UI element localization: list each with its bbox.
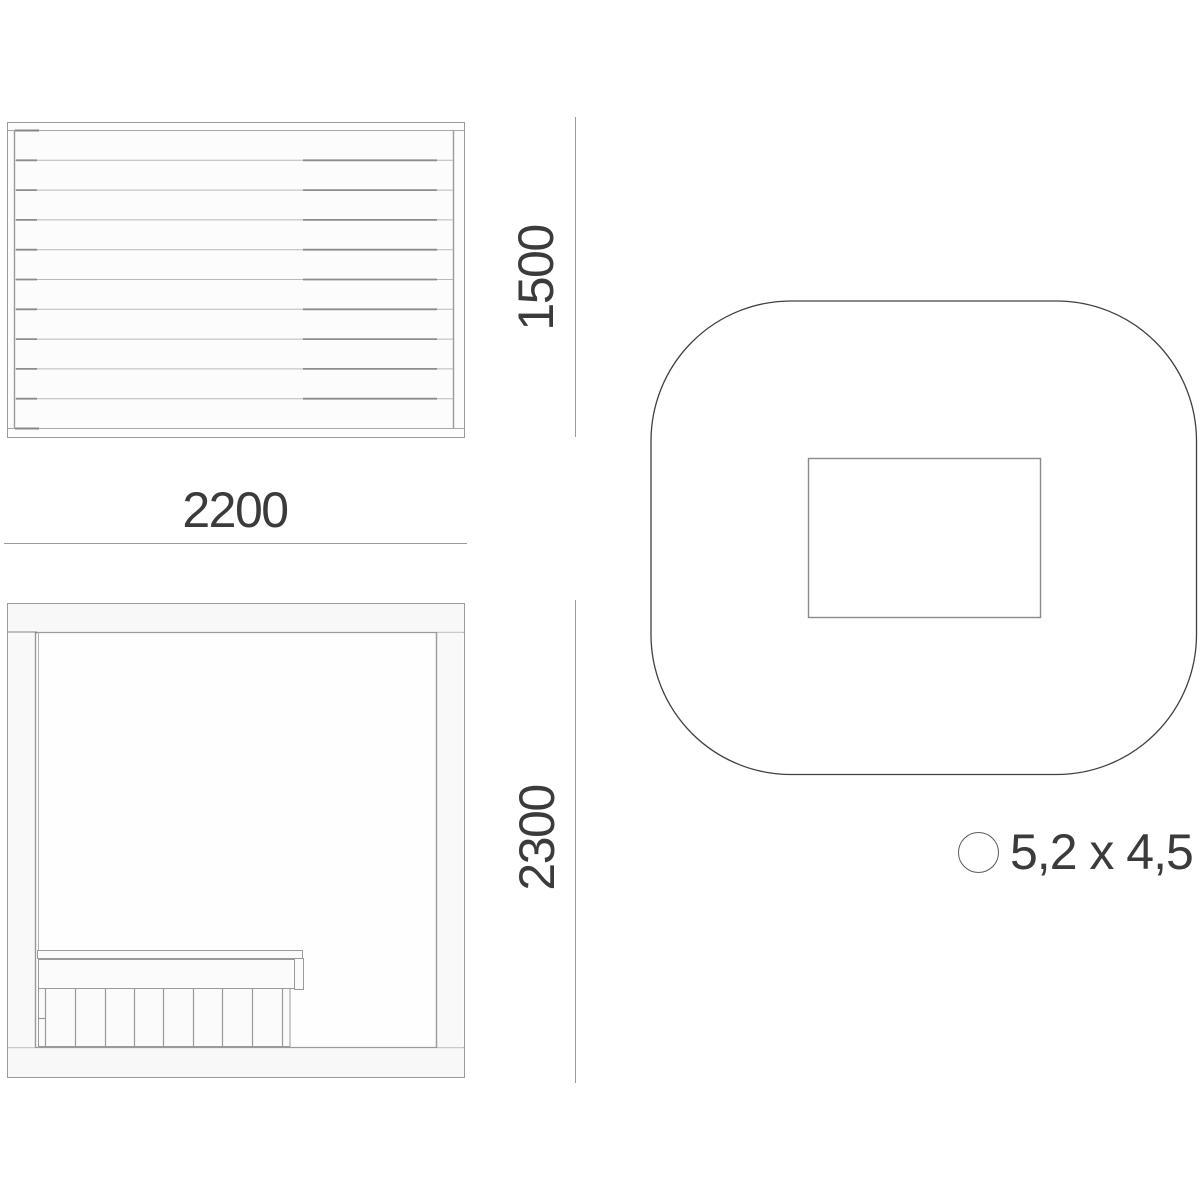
site-plan-view-drawing [650, 300, 1198, 776]
circle-icon [958, 832, 999, 873]
footprint-size-row: 5,2 x 4,5 [958, 826, 1193, 878]
plan-inner-rectangle [809, 459, 1041, 618]
technical-drawing-canvas: 1500 2200 2300 5,2 x 4,5 [0, 0, 1200, 1200]
cabin-front-view-drawing [7, 603, 465, 1078]
footprint-size-label: 5,2 x 4,5 [1010, 823, 1193, 881]
dimension-label-side-height: 1500 [486, 228, 586, 328]
dimension-label-top-width: 2200 [135, 480, 335, 540]
left-post [8, 633, 36, 1048]
right-post [437, 633, 464, 1048]
bench [38, 951, 304, 1047]
dimension-line-top-width [4, 543, 467, 545]
roof-top-view-drawing [7, 122, 465, 438]
dimension-label-front-height: 2300 [487, 788, 587, 888]
